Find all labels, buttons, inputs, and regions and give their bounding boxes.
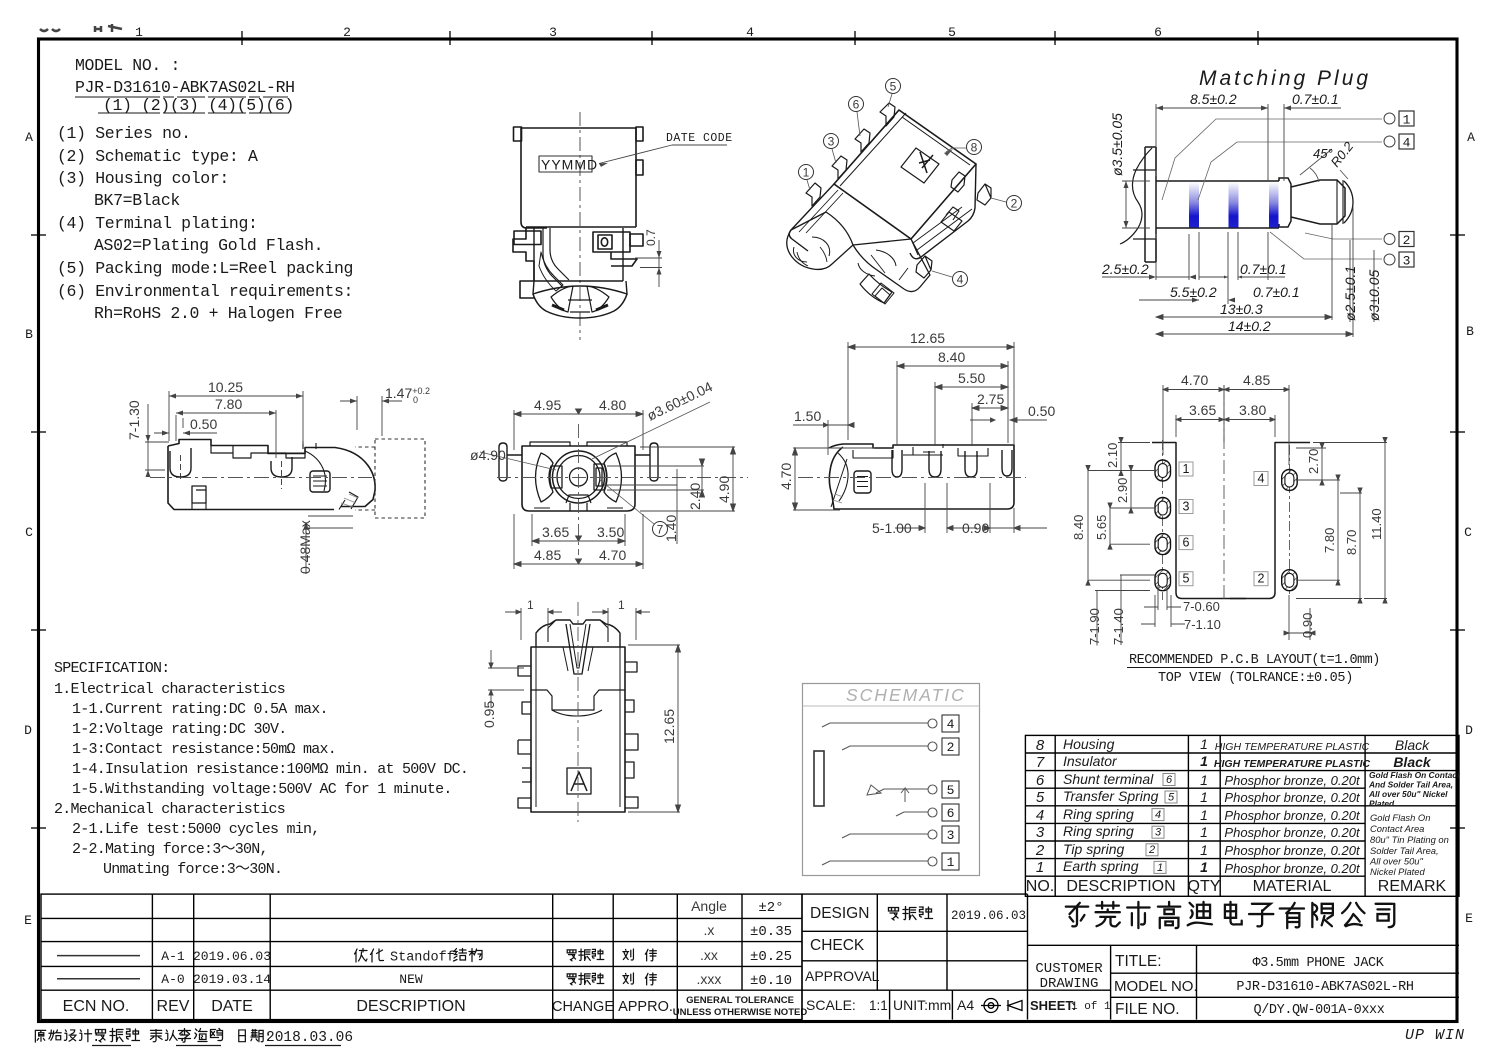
svg-text:0.50: 0.50 <box>190 416 217 432</box>
svg-text:1: 1 <box>527 598 534 612</box>
svg-text:6: 6 <box>1154 25 1162 40</box>
svg-text:Housing: Housing <box>1063 736 1115 752</box>
svg-text:(3) Housing color:: (3) Housing color: <box>57 169 229 188</box>
svg-text:Phosphor bronze, 0.20t: Phosphor bronze, 0.20t <box>1224 790 1361 805</box>
svg-text:E: E <box>1465 911 1473 926</box>
svg-text:SHEET:: SHEET: <box>1030 998 1076 1013</box>
svg-text:2019.03.14: 2019.03.14 <box>193 972 271 987</box>
svg-text:Q/DY.QW-001A-0xxx: Q/DY.QW-001A-0xxx <box>1254 1003 1385 1018</box>
svg-text:HIGH TEMPERATURE PLASTIC: HIGH TEMPERATURE PLASTIC <box>1215 741 1370 753</box>
svg-text:D: D <box>24 723 32 738</box>
svg-text:7.80: 7.80 <box>1322 528 1337 553</box>
svg-text:DESCRIPTION: DESCRIPTION <box>356 998 465 1015</box>
svg-text:REMARK: REMARK <box>1378 878 1447 895</box>
svg-text:5: 5 <box>890 80 897 94</box>
svg-text:7: 7 <box>1036 754 1045 771</box>
svg-text:NO.: NO. <box>1026 878 1054 895</box>
svg-text:Insulator: Insulator <box>1063 753 1118 769</box>
svg-text:11.40: 11.40 <box>1369 508 1384 540</box>
svg-text:Standoff: Standoff <box>390 951 455 966</box>
svg-text:5: 5 <box>948 25 956 40</box>
svg-text:3: 3 <box>1183 500 1190 514</box>
svg-text:2: 2 <box>1011 197 1018 211</box>
svg-text:8.70: 8.70 <box>1344 530 1359 555</box>
svg-text:1-3:Contact resistance:50mΩ ma: 1-3:Contact resistance:50mΩ max. <box>72 741 336 758</box>
svg-text:DESCRIPTION: DESCRIPTION <box>1066 878 1175 895</box>
svg-text:1: 1 <box>1157 862 1163 874</box>
svg-text:3: 3 <box>828 135 835 149</box>
svg-text:ø3.5±0.05: ø3.5±0.05 <box>1109 113 1125 176</box>
svg-text:RECOMMENDED P.C.B LAYOUT(t=1.0: RECOMMENDED P.C.B LAYOUT(t=1.0mm) <box>1129 653 1380 668</box>
svg-text:1: 1 <box>1200 842 1208 858</box>
svg-text:B: B <box>25 327 33 342</box>
svg-text:4.95: 4.95 <box>534 397 561 413</box>
svg-text:1:1: 1:1 <box>869 998 888 1013</box>
svg-text:1: 1 <box>135 25 143 40</box>
svg-text:4: 4 <box>957 273 964 287</box>
svg-text:4.85: 4.85 <box>534 547 561 563</box>
svg-text:1-4.Insulation resistance:100M: 1-4.Insulation resistance:100MΩ min. at … <box>72 761 468 778</box>
svg-text:±2°: ±2° <box>758 900 783 916</box>
svg-text:1-1.Current rating:DC 0.5A max: 1-1.Current rating:DC 0.5A max. <box>72 701 328 718</box>
svg-text:6: 6 <box>947 806 955 821</box>
svg-text:3: 3 <box>1155 827 1162 839</box>
svg-text:CHECK: CHECK <box>810 937 865 954</box>
svg-text:QTY: QTY <box>1188 878 1221 895</box>
svg-text:FILE NO.: FILE NO. <box>1115 1001 1180 1018</box>
svg-text:3: 3 <box>947 828 955 843</box>
svg-text:±0.25: ±0.25 <box>750 949 792 965</box>
svg-text:2.40: 2.40 <box>687 483 703 510</box>
svg-text:4.80: 4.80 <box>599 397 626 413</box>
svg-text:Black: Black <box>1393 754 1432 770</box>
svg-text:4: 4 <box>1258 472 1265 486</box>
svg-text:4.70: 4.70 <box>599 547 626 563</box>
svg-text:Transfer Spring: Transfer Spring <box>1063 788 1159 804</box>
svg-text:8.5±0.2: 8.5±0.2 <box>1190 91 1237 107</box>
svg-text:(1) (2)(3) (4)(5)(6): (1) (2)(3) (4)(5)(6) <box>103 96 294 115</box>
svg-text:8.40: 8.40 <box>1071 515 1086 540</box>
svg-text:7.80: 7.80 <box>215 396 242 412</box>
svg-text:1: 1 <box>1200 859 1208 875</box>
svg-text:MODEL NO.: MODEL NO. <box>1114 978 1198 995</box>
svg-text:1: 1 <box>1200 772 1208 788</box>
svg-text:C: C <box>1464 525 1472 540</box>
svg-text:ø4.90: ø4.90 <box>470 447 506 463</box>
svg-text:8: 8 <box>971 141 978 155</box>
svg-text:(6) Environmental requirements: (6) Environmental requirements: <box>57 282 353 301</box>
svg-text:1.Electrical characteristics: 1.Electrical characteristics <box>54 681 285 698</box>
svg-text:REV: REV <box>157 998 190 1015</box>
svg-text:APPRO.: APPRO. <box>618 999 673 1015</box>
svg-text:5: 5 <box>1183 572 1190 586</box>
svg-text:12.65: 12.65 <box>910 330 945 346</box>
svg-text:1: 1 <box>947 855 955 870</box>
svg-text:4.70: 4.70 <box>1181 372 1208 388</box>
svg-text:Phosphor bronze, 0.20t: Phosphor bronze, 0.20t <box>1224 773 1361 788</box>
svg-text:Contact Area: Contact Area <box>1370 823 1424 834</box>
svg-text:CUSTOMER: CUSTOMER <box>1035 961 1103 977</box>
svg-text:14±0.2: 14±0.2 <box>1228 318 1271 334</box>
svg-text:0.50: 0.50 <box>1028 403 1055 419</box>
svg-text:3.65: 3.65 <box>542 524 569 540</box>
svg-text:A: A <box>25 130 33 145</box>
svg-text:Earth spring: Earth spring <box>1063 858 1139 874</box>
svg-text:(2) Schematic type: A: (2) Schematic type: A <box>57 147 258 166</box>
svg-text:.xx: .xx <box>700 947 718 963</box>
svg-text:5.5±0.2: 5.5±0.2 <box>1170 284 1217 300</box>
svg-text:3.65: 3.65 <box>1189 402 1216 418</box>
svg-text:Tip spring: Tip spring <box>1063 841 1125 857</box>
svg-text:Matching Plug: Matching Plug <box>1199 67 1371 90</box>
svg-text:7-1.90: 7-1.90 <box>1087 608 1102 645</box>
svg-text:CHANGE: CHANGE <box>552 999 614 1015</box>
svg-text:And Solder Tail Area,: And Solder Tail Area, <box>1368 780 1453 790</box>
svg-text:1: 1 <box>1200 753 1208 769</box>
svg-text:0.48Max: 0.48Max <box>297 520 313 574</box>
svg-text:13±0.3: 13±0.3 <box>1220 301 1263 317</box>
svg-text:A-1: A-1 <box>161 949 185 964</box>
svg-text:2.90: 2.90 <box>1115 478 1130 503</box>
svg-text:1: 1 <box>1036 859 1044 876</box>
svg-text:2.5±0.2: 2.5±0.2 <box>1101 261 1149 277</box>
svg-text:ø3±0.05: ø3±0.05 <box>1366 270 1382 321</box>
svg-text:MATERIAL: MATERIAL <box>1253 878 1332 895</box>
svg-text:Gold Flash On: Gold Flash On <box>1370 812 1430 823</box>
svg-text:7-0.60: 7-0.60 <box>1183 599 1220 614</box>
svg-text:ø2.5±0.1: ø2.5±0.1 <box>1342 266 1358 321</box>
svg-text:DATE CODE: DATE CODE <box>666 132 733 145</box>
svg-text:Phosphor bronze, 0.20t: Phosphor bronze, 0.20t <box>1224 825 1361 840</box>
svg-text:NEW: NEW <box>399 972 423 987</box>
svg-text:±0.35: ±0.35 <box>750 924 792 940</box>
svg-text:PJR-D31610-ABK7AS02L-RH: PJR-D31610-ABK7AS02L-RH <box>1236 980 1413 995</box>
svg-text:2: 2 <box>1035 842 1045 859</box>
svg-text:Nickel Plated: Nickel Plated <box>1370 866 1425 877</box>
svg-text:0.7: 0.7 <box>644 229 658 246</box>
svg-text:5: 5 <box>1036 789 1045 806</box>
svg-text:2018.03.06: 2018.03.06 <box>266 1030 353 1046</box>
svg-text:HIGH TEMPERATURE PLASTIC: HIGH TEMPERATURE PLASTIC <box>1214 758 1371 770</box>
svg-text:UNIT:mm: UNIT:mm <box>893 997 951 1013</box>
svg-text:All over 50u": All over 50u" <box>1369 856 1424 867</box>
svg-text:2: 2 <box>947 740 955 755</box>
svg-text:3: 3 <box>1036 824 1045 841</box>
svg-text:Unmating force:3～30N.: Unmating force:3～30N. <box>103 861 282 878</box>
svg-text:0.90: 0.90 <box>1300 613 1315 638</box>
svg-text:Gold Flash On Contact: Gold Flash On Contact <box>1369 770 1461 780</box>
svg-text:SPECIFICATION:: SPECIFICATION: <box>54 660 170 677</box>
svg-text:1: 1 <box>1200 736 1208 752</box>
svg-text:1: 1 <box>1403 113 1411 128</box>
svg-text:5-1.00: 5-1.00 <box>872 520 912 536</box>
svg-text:5.65: 5.65 <box>1094 515 1109 540</box>
svg-text:2.10: 2.10 <box>1105 443 1120 468</box>
svg-text:All over 50u" Nickel: All over 50u" Nickel <box>1368 789 1448 799</box>
svg-text:4: 4 <box>1155 809 1161 821</box>
svg-text:0.7±0.1: 0.7±0.1 <box>1240 261 1287 277</box>
svg-text:1-5.Withstanding voltage:500V: 1-5.Withstanding voltage:500V AC for 1 m… <box>72 781 452 798</box>
svg-text:UP WIN: UP WIN <box>1405 1027 1465 1044</box>
svg-text:DESIGN: DESIGN <box>810 905 869 922</box>
svg-text:4: 4 <box>1036 807 1044 824</box>
svg-text:.x: .x <box>704 922 715 938</box>
svg-text:.xxx: .xxx <box>697 971 722 987</box>
svg-text:6: 6 <box>853 98 860 112</box>
svg-text:0.95: 0.95 <box>481 701 497 728</box>
svg-text:2.Mechanical characteristics: 2.Mechanical characteristics <box>54 801 285 818</box>
svg-text:(1) Series no.: (1) Series no. <box>57 124 191 143</box>
svg-text:SCALE:: SCALE: <box>806 997 856 1013</box>
svg-text:1: 1 <box>1183 462 1190 476</box>
svg-text:3.80: 3.80 <box>1239 402 1266 418</box>
svg-text:B: B <box>1466 324 1474 339</box>
svg-text:2.70: 2.70 <box>1306 449 1321 474</box>
svg-text:0.7±0.1: 0.7±0.1 <box>1253 284 1300 300</box>
svg-text:7: 7 <box>657 523 664 537</box>
svg-text:80u" Tin Plating on: 80u" Tin Plating on <box>1370 834 1449 845</box>
svg-text:12.65: 12.65 <box>661 709 677 744</box>
svg-text:D: D <box>1465 723 1473 738</box>
svg-text:6: 6 <box>1036 772 1045 789</box>
svg-text:8: 8 <box>1036 737 1045 754</box>
svg-text:4.85: 4.85 <box>1243 372 1270 388</box>
svg-text:Phosphor bronze, 0.20t: Phosphor bronze, 0.20t <box>1224 843 1361 858</box>
svg-text:2: 2 <box>1258 572 1265 586</box>
svg-text:Φ3.5mm PHONE JACK: Φ3.5mm PHONE JACK <box>1253 956 1385 971</box>
svg-text:A4: A4 <box>957 997 974 1013</box>
svg-text:1.40: 1.40 <box>663 515 679 542</box>
svg-text:YYMMD: YYMMD <box>541 157 598 173</box>
svg-text:2.75: 2.75 <box>977 391 1004 407</box>
svg-text:7-1.10: 7-1.10 <box>1184 617 1221 632</box>
svg-text:BK7=Black: BK7=Black <box>94 191 180 210</box>
svg-text:Ring spring: Ring spring <box>1063 823 1134 839</box>
svg-text:Angle: Angle <box>691 898 727 914</box>
svg-text:DATE: DATE <box>211 998 252 1015</box>
svg-text:Shunt terminal: Shunt terminal <box>1063 771 1154 787</box>
svg-text:3: 3 <box>1403 254 1411 269</box>
svg-text:APPROVAL: APPROVAL <box>805 968 880 984</box>
svg-text:5: 5 <box>1168 792 1175 804</box>
svg-text:C: C <box>25 525 33 540</box>
svg-text:Plated: Plated <box>1369 799 1395 809</box>
svg-text:1: 1 <box>618 598 625 612</box>
svg-text:8.40: 8.40 <box>938 349 965 365</box>
svg-text:PJR-D31610-ABK7AS02L-RH: PJR-D31610-ABK7AS02L-RH <box>75 78 295 97</box>
svg-text:(5) Packing mode:L=Reel packin: (5) Packing mode:L=Reel packing <box>57 259 353 278</box>
svg-text:1: 1 <box>803 166 810 180</box>
svg-text:10.25: 10.25 <box>208 379 243 395</box>
svg-text:A-0: A-0 <box>161 972 184 987</box>
svg-text:1-2:Voltage rating:DC 30V.: 1-2:Voltage rating:DC 30V. <box>72 721 287 738</box>
svg-text:0.7±0.1: 0.7±0.1 <box>1292 91 1339 107</box>
svg-text:TITLE:: TITLE: <box>1115 953 1162 970</box>
svg-text:TOP VIEW (TOLRANCE:±0.05): TOP VIEW (TOLRANCE:±0.05) <box>1158 671 1353 686</box>
svg-text:1 of 1: 1 of 1 <box>1071 1001 1111 1013</box>
svg-text:4: 4 <box>746 25 754 40</box>
svg-text:2019.06.03: 2019.06.03 <box>193 949 271 964</box>
svg-text:Rh=RoHS 2.0 + Halogen Free: Rh=RoHS 2.0 + Halogen Free <box>94 304 342 323</box>
svg-text:2019.06.03: 2019.06.03 <box>951 909 1026 923</box>
svg-text:5.50: 5.50 <box>958 370 985 386</box>
svg-text:2-2.Mating force:3～30N,: 2-2.Mating force:3～30N, <box>72 841 268 858</box>
svg-text:4.90: 4.90 <box>716 476 732 503</box>
svg-text:1: 1 <box>1200 789 1208 805</box>
svg-text:Black: Black <box>1395 737 1430 753</box>
svg-text:7-1.40: 7-1.40 <box>1111 608 1126 645</box>
svg-text:AS02=Plating Gold Flash.: AS02=Plating Gold Flash. <box>94 236 323 255</box>
svg-text:2-1.Life test:5000 cycles min,: 2-1.Life test:5000 cycles min, <box>72 821 320 838</box>
svg-text:0.90: 0.90 <box>962 520 989 536</box>
svg-text:DRAWING: DRAWING <box>1040 976 1099 992</box>
svg-text:4: 4 <box>947 717 955 732</box>
svg-text:Ring spring: Ring spring <box>1063 806 1134 822</box>
svg-text:2: 2 <box>1148 844 1155 856</box>
svg-text:6: 6 <box>1166 774 1173 786</box>
svg-text:1.50: 1.50 <box>794 408 821 424</box>
svg-text:3: 3 <box>549 25 557 40</box>
svg-text:3.50: 3.50 <box>597 524 624 540</box>
svg-text:A: A <box>1467 130 1475 145</box>
svg-text:1: 1 <box>1200 807 1208 823</box>
svg-text:Solder Tail Area,: Solder Tail Area, <box>1370 845 1439 856</box>
svg-text:GENERAL TOLERANCE: GENERAL TOLERANCE <box>686 995 794 1006</box>
svg-text:4: 4 <box>1403 136 1411 151</box>
svg-text:ECN NO.: ECN NO. <box>63 998 130 1015</box>
svg-text:UNLESS OTHERWISE NOTED: UNLESS OTHERWISE NOTED <box>673 1007 808 1018</box>
svg-text:±0.10: ±0.10 <box>750 973 792 989</box>
svg-text:(4) Terminal plating:: (4) Terminal plating: <box>57 214 258 233</box>
svg-text:2: 2 <box>1403 233 1411 248</box>
svg-text:1: 1 <box>1200 824 1208 840</box>
svg-text:5: 5 <box>947 783 955 798</box>
svg-text:SCHEMATIC: SCHEMATIC <box>846 685 966 705</box>
svg-text:7-1.30: 7-1.30 <box>126 400 142 440</box>
svg-text:MODEL NO. :: MODEL NO. : <box>75 56 180 75</box>
svg-text:E: E <box>24 913 32 928</box>
svg-text:6: 6 <box>1183 536 1190 550</box>
svg-text:Phosphor bronze, 0.20t: Phosphor bronze, 0.20t <box>1224 808 1361 823</box>
svg-text:4.70: 4.70 <box>778 463 794 490</box>
svg-text:2: 2 <box>343 25 351 40</box>
svg-text:Phosphor bronze, 0.20t: Phosphor bronze, 0.20t <box>1224 861 1361 876</box>
